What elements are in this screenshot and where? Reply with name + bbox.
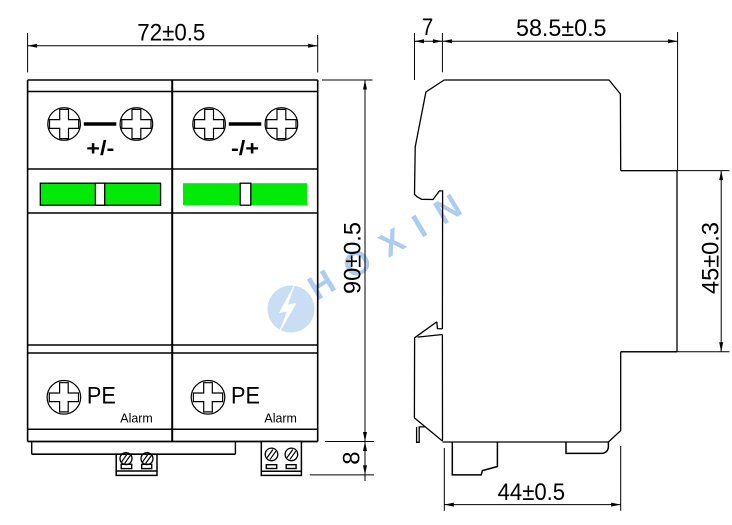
svg-text:Alarm: Alarm (264, 411, 297, 426)
svg-text:90±0.5: 90±0.5 (340, 222, 367, 294)
svg-text:58.5±0.5: 58.5±0.5 (516, 15, 607, 42)
svg-text:+/-: +/- (86, 138, 114, 160)
svg-text:8: 8 (339, 451, 366, 464)
svg-text:72±0.5: 72±0.5 (137, 20, 205, 47)
svg-text:45±0.3: 45±0.3 (698, 222, 725, 294)
svg-text:44±0.5: 44±0.5 (498, 479, 565, 506)
svg-text:7: 7 (422, 14, 434, 41)
svg-text:PE: PE (87, 383, 116, 410)
svg-text:HOXIN: HOXIN (302, 179, 482, 308)
svg-text:PE: PE (231, 383, 260, 410)
svg-text:-/+: -/+ (231, 138, 259, 160)
svg-text:Alarm: Alarm (120, 411, 153, 426)
